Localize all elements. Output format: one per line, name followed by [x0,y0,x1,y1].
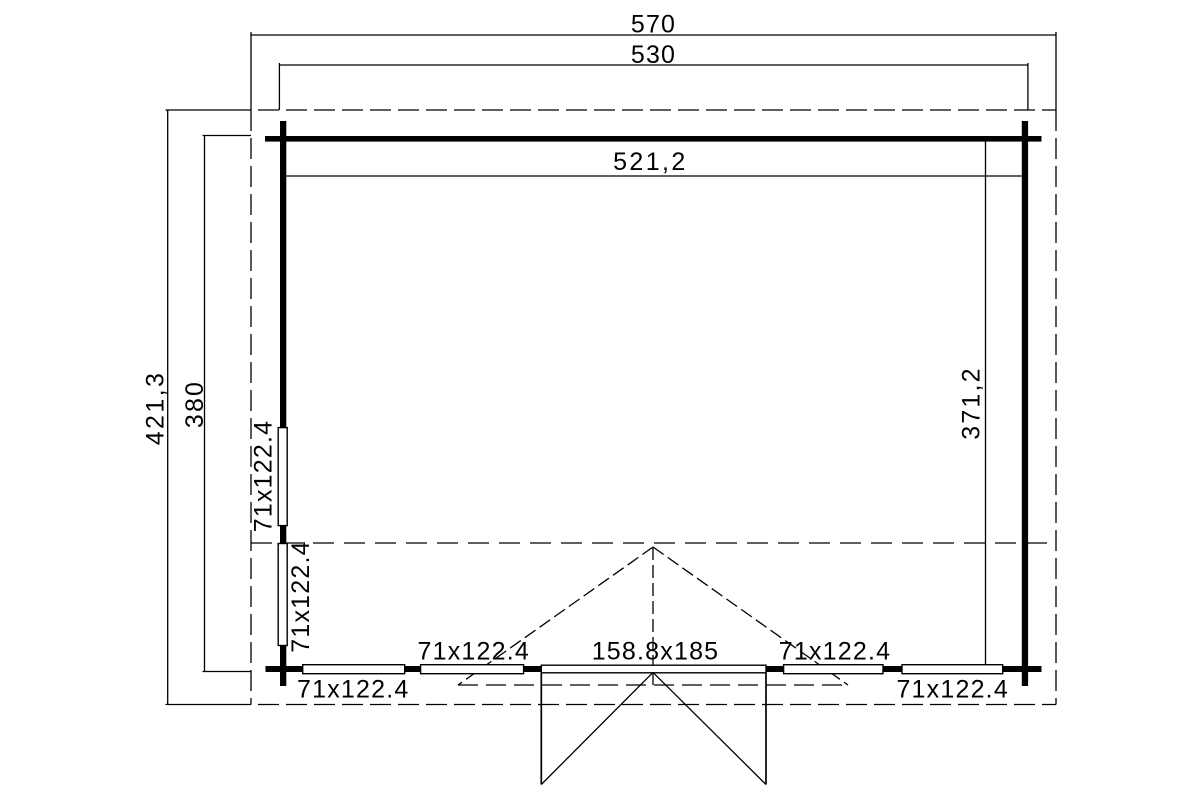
svg-text:530: 530 [631,41,676,69]
svg-text:71x122.4: 71x122.4 [779,638,891,666]
svg-text:521,2: 521,2 [613,148,688,176]
svg-text:158.8x185: 158.8x185 [592,638,720,666]
svg-text:380: 380 [181,380,209,428]
svg-text:71x122.4: 71x122.4 [418,638,530,666]
svg-text:421,3: 421,3 [142,371,170,446]
svg-text:570: 570 [631,11,676,39]
svg-text:71x122.4: 71x122.4 [896,676,1008,704]
svg-text:371,2: 371,2 [958,366,986,440]
svg-text:71x122.4: 71x122.4 [287,540,315,652]
svg-text:71x122.4: 71x122.4 [250,420,278,532]
svg-text:71x122.4: 71x122.4 [297,676,409,704]
